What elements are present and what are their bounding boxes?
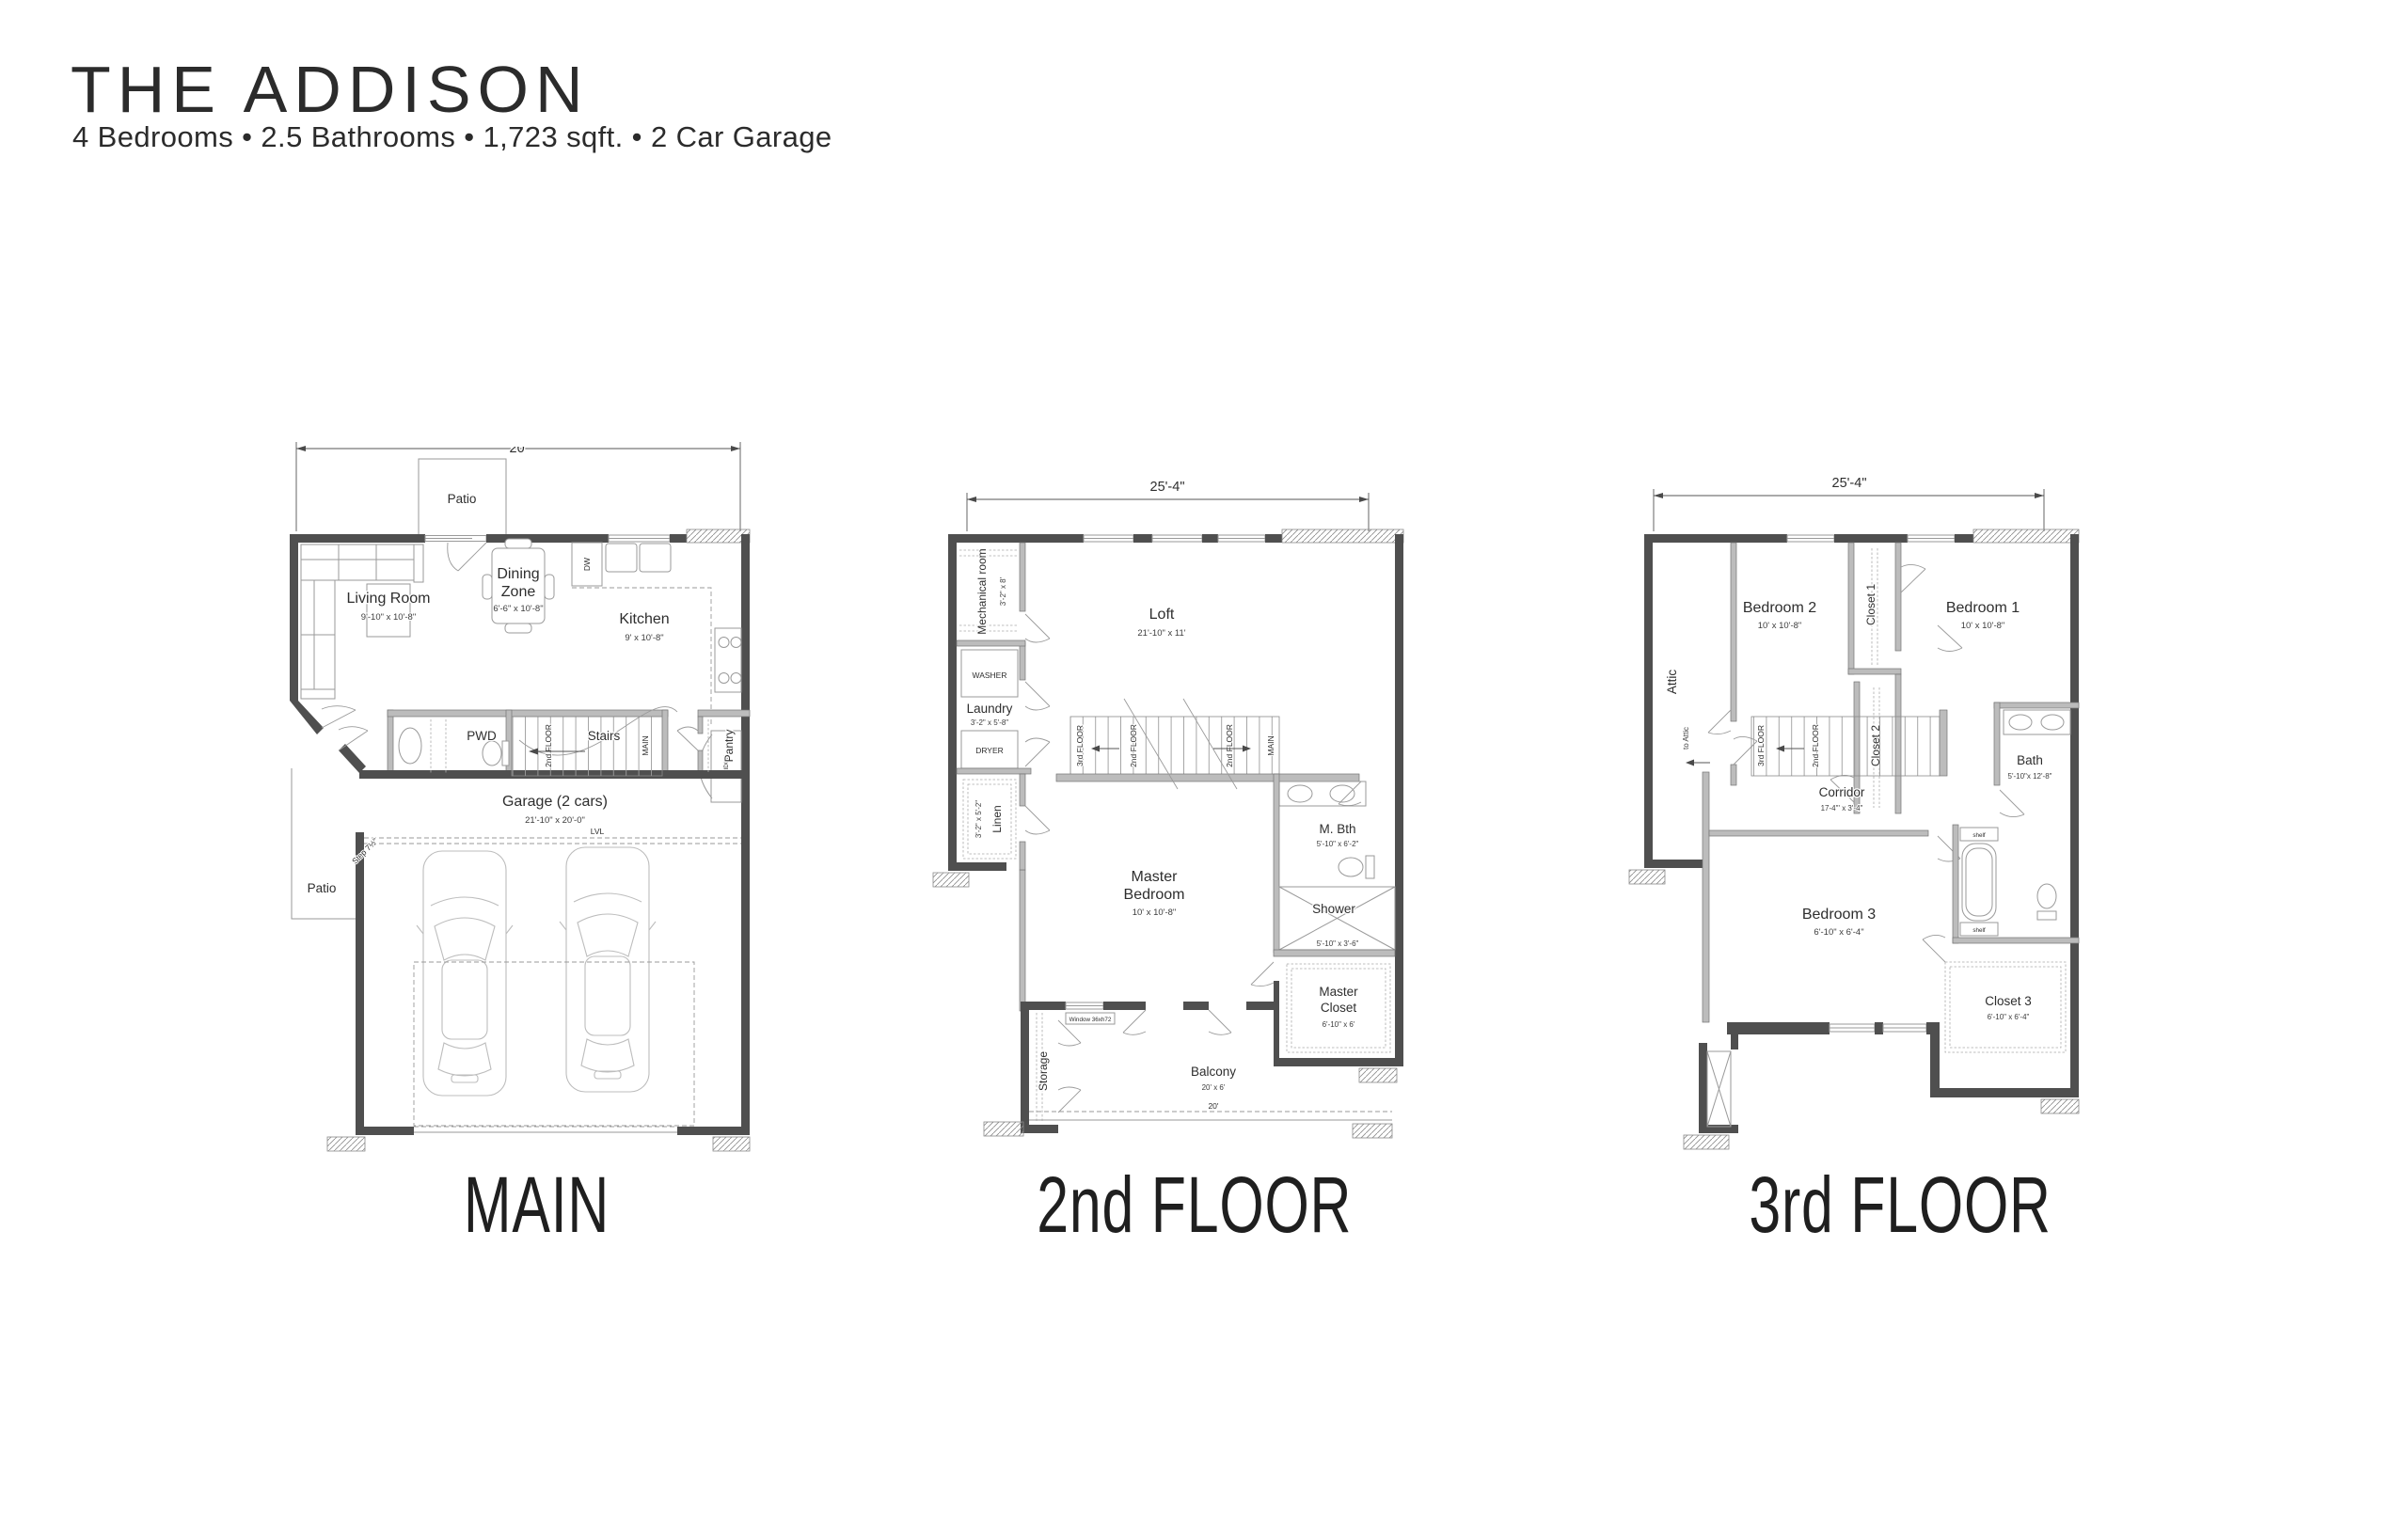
pantry-label: Pantry xyxy=(722,730,736,763)
bath-dims: 5'-10"x 12'-8" xyxy=(2008,772,2052,781)
kitchen: Kitchen 9' x 10'-8" xyxy=(619,611,669,643)
entry-doors xyxy=(322,706,368,750)
closet3-dims: 6'-10" x 6'-4" xyxy=(1988,1013,2030,1021)
shelf-bottom-label: shelf xyxy=(1972,927,1986,934)
corridor-dims: 17-4"' x 3'-4" xyxy=(1821,804,1863,813)
living-room: Living Room 9'-10" x 10'-8" xyxy=(347,591,431,623)
master-label-1: Master xyxy=(1132,869,1179,885)
kitchen-dims: 9' x 10'-8" xyxy=(625,633,663,643)
balcony-dims: 20' x 6' xyxy=(1202,1083,1226,1092)
main-plan-title: MAIN xyxy=(273,1159,800,1244)
car-icon xyxy=(560,847,656,1092)
stair-main-label: MAIN xyxy=(1266,735,1275,755)
bedroom3-dims: 6'-10" x 6'-4" xyxy=(1814,927,1863,938)
balcony-width: 20' xyxy=(1208,1101,1218,1111)
stair-2nd-label-b: 2nd FLOOR xyxy=(1225,724,1234,767)
linen-label: Linen xyxy=(990,805,1004,832)
corridor: Corridor 17-4"' x 3'-4" xyxy=(1703,772,1960,1022)
patio-side: Patio xyxy=(292,768,356,919)
bedroom-1: Bedroom 1 10' x 10'-8" xyxy=(1938,600,2020,652)
attic: Attic to Attic xyxy=(1665,543,1757,785)
dining-label-1: Dining xyxy=(497,566,539,582)
third-stairs: 3rd FLOOR 2nd FLOOR xyxy=(1751,710,1947,776)
patio-top: Patio xyxy=(419,459,506,534)
second-dim-label: 25'-4" xyxy=(1150,480,1185,495)
pwd-room: PWD xyxy=(399,719,509,774)
stair-3rd-label: 3rd FLOOR xyxy=(1756,725,1766,766)
laundry: WASHER Laundry 3'-2" x 5'-8" DRYER xyxy=(957,650,1050,774)
corridor-label: Corridor xyxy=(1819,785,1865,799)
step-label: Step 7½" xyxy=(350,836,380,866)
closet-1: Closet 1 xyxy=(1848,543,1925,674)
shaft xyxy=(1684,1034,1738,1149)
loft: Loft 21'-10" x 11' xyxy=(1137,607,1185,639)
dining-label-2: Zone xyxy=(501,584,536,600)
storage-label: Storage xyxy=(1037,1051,1050,1091)
bedroom2-dims: 10' x 10'-8" xyxy=(1758,621,1802,631)
mech-room-dims: 3'-2" x 8' xyxy=(999,576,1007,606)
mbth-label: M. Bth xyxy=(1319,822,1355,836)
stairs-label: Stairs xyxy=(588,729,621,743)
main-top-dimension: 20' xyxy=(296,441,740,531)
main-stairs: Stairs 2nd FLOOR MAIN xyxy=(512,717,662,776)
bath-label: Bath xyxy=(2017,753,2043,767)
second-floor-plan: 25'-4" xyxy=(931,400,1458,1163)
bedroom1-label: Bedroom 1 xyxy=(1946,600,2020,616)
kitchen-label: Kitchen xyxy=(619,611,669,627)
master-bedroom: Master Bedroom 10' x 10'-8" xyxy=(1124,869,1185,918)
window-size-label: Window 36xh72 xyxy=(1069,1017,1112,1023)
stair-dir-up: 2nd FLOOR xyxy=(544,724,553,767)
second-stairs: 3rd FLOOR 2nd FLOOR 2nd FLOOR MAIN xyxy=(1056,699,1359,789)
pwd-label: PWD xyxy=(467,729,497,743)
patio-door xyxy=(448,543,486,571)
washer-label: WASHER xyxy=(973,671,1007,680)
laundry-label: Laundry xyxy=(967,702,1013,716)
dishwasher-label: DW xyxy=(582,558,592,571)
patio-top-label: Patio xyxy=(448,492,477,506)
linen-closet: Linen 3'-2" x 5'-2" xyxy=(963,774,1050,870)
closet1-label: Closet 1 xyxy=(1864,584,1877,625)
garage: Garage (2 cars) 21'-10" x 20'-0" LVL Ste… xyxy=(350,794,741,1132)
closet3-label: Closet 3 xyxy=(1985,994,2032,1008)
bedroom2-label: Bedroom 2 xyxy=(1743,600,1816,616)
master-bath: M. Bth 5'-10" x 6'-2" xyxy=(1279,781,1374,878)
garage-dims: 21'-10" x 20'-0" xyxy=(525,815,585,826)
shower-label: Shower xyxy=(1312,902,1355,916)
attic-label: Attic xyxy=(1665,670,1679,695)
main-dim-label: 20' xyxy=(510,441,528,456)
bedroom1-dims: 10' x 10'-8" xyxy=(1961,621,2005,631)
master-dims: 10' x 10'-8" xyxy=(1133,907,1177,918)
mcloset-label-1: Master xyxy=(1319,985,1358,999)
stair-dir-main: MAIN xyxy=(641,735,650,755)
living-room-dims: 9'-10" x 10'-8" xyxy=(361,612,416,623)
mech-room-label: Mechanical room xyxy=(975,548,989,634)
bath: Bath 5'-10"x 12'-8" shelf shelf xyxy=(1953,702,2079,943)
car-icon xyxy=(417,851,513,1096)
bedroom3-label: Bedroom 3 xyxy=(1802,907,1876,923)
closet-3: Closet 3 6'-10" x 6'-4" xyxy=(1923,935,2066,1052)
stair-3rd-label: 3rd FLOOR xyxy=(1075,725,1085,766)
living-room-label: Living Room xyxy=(347,591,431,607)
stair-2nd-label-a: 2nd FLOOR xyxy=(1129,724,1138,767)
second-plan-title: 2nd FLOOR xyxy=(931,1159,1458,1244)
third-floor-plan: 25'-4" Attic to Attic xyxy=(1627,400,2173,1163)
mbth-dims: 5'-10" x 6'-2" xyxy=(1317,840,1359,848)
third-top-dimension: 25'-4" xyxy=(1654,476,2044,531)
page-subtitle: 4 Bedrooms • 2.5 Bathrooms • 1,723 sqft.… xyxy=(72,120,832,154)
lvl-label: LVL xyxy=(591,827,605,836)
third-plan-title: 3rd FLOOR xyxy=(1627,1159,2173,1244)
patio-side-label: Patio xyxy=(308,881,337,895)
garage-label: Garage (2 cars) xyxy=(502,794,608,810)
stair-2nd-label: 2nd FLOOR xyxy=(1811,724,1820,767)
third-dim-label: 25'-4" xyxy=(1832,476,1867,491)
loft-label: Loft xyxy=(1149,607,1175,623)
floor-plan-sheet: THE ADDISON 4 Bedrooms • 2.5 Bathrooms •… xyxy=(0,0,2408,1515)
master-label-2: Bedroom xyxy=(1124,887,1185,903)
bedroom-south-wall: Window 36xh72 xyxy=(1029,1002,1279,1034)
mcloset-dims: 6'-10" x 6' xyxy=(1323,1020,1355,1029)
mcloset-label-2: Closet xyxy=(1321,1001,1357,1015)
balcony-label: Balcony xyxy=(1191,1065,1236,1079)
second-top-dimension: 25'-4" xyxy=(967,480,1369,531)
main-floor-plan: 20' Patio xyxy=(273,400,800,1163)
dining-dims: 6'-6" x 10'-8" xyxy=(493,604,543,614)
loft-dims: 21'-10" x 11' xyxy=(1137,628,1185,639)
bedroom-3: Bedroom 3 6'-10" x 6'-4" xyxy=(1727,907,1940,1088)
laundry-dims: 3'-2" x 5'-8" xyxy=(971,718,1008,727)
shelf-top-label: shelf xyxy=(1972,832,1986,839)
page-title: THE ADDISON xyxy=(71,52,590,127)
bedroom-2: Bedroom 2 10' x 10'-8" xyxy=(1743,600,1816,631)
linen-dims: 3'-2" x 5'-2" xyxy=(974,800,983,838)
to-attic-label: to Attic xyxy=(1682,727,1690,750)
shower-dims: 5'-10" x 3'-6" xyxy=(1317,939,1359,948)
dryer-label: DRYER xyxy=(975,746,1004,755)
